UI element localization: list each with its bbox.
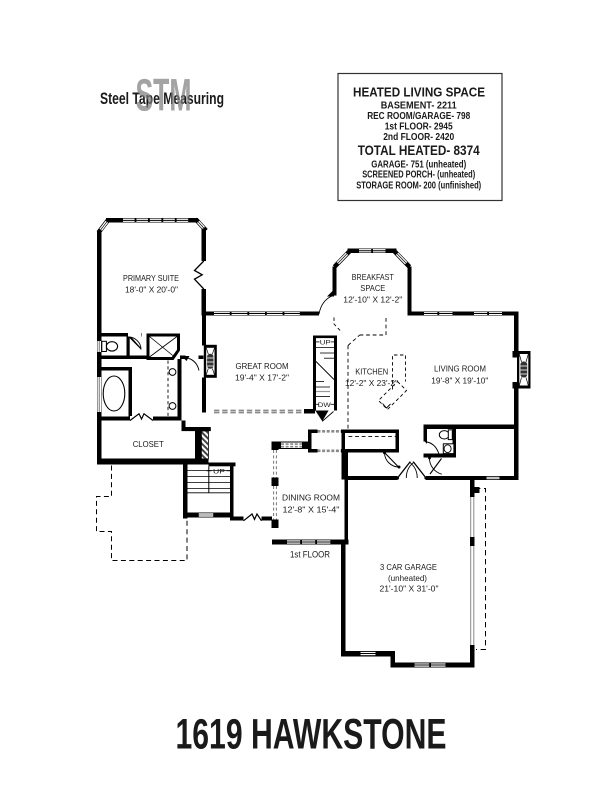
svg-text:(unheated): (unheated) bbox=[388, 573, 427, 583]
svg-text:1619 HAWKSTONE: 1619 HAWKSTONE bbox=[176, 709, 447, 758]
svg-text:12'-8" X 15'-4": 12'-8" X 15'-4" bbox=[283, 504, 340, 514]
svg-text:2nd FLOOR- 2420: 2nd FLOOR- 2420 bbox=[383, 132, 454, 143]
svg-text:HEATED LIVING SPACE: HEATED LIVING SPACE bbox=[353, 86, 485, 100]
svg-text:PRIMARY SUITE: PRIMARY SUITE bbox=[123, 273, 179, 283]
svg-text:LIVING ROOM: LIVING ROOM bbox=[434, 364, 486, 374]
svg-text:DW: DW bbox=[318, 402, 332, 409]
svg-text:UP: UP bbox=[213, 468, 226, 475]
svg-text:3 CAR GARAGE: 3 CAR GARAGE bbox=[380, 562, 437, 572]
svg-text:STM: STM bbox=[136, 70, 192, 120]
svg-text:18'-0" X 20'-0": 18'-0" X 20'-0" bbox=[125, 285, 178, 295]
svg-text:DINING ROOM: DINING ROOM bbox=[282, 493, 340, 503]
svg-text:12'-10" X 12'-2": 12'-10" X 12'-2" bbox=[343, 294, 402, 304]
svg-text:1st FLOOR: 1st FLOOR bbox=[290, 550, 330, 560]
svg-text:REC ROOM/GARAGE- 798: REC ROOM/GARAGE- 798 bbox=[367, 111, 470, 122]
svg-text:UP: UP bbox=[320, 339, 332, 346]
svg-text:SPACE: SPACE bbox=[360, 283, 385, 293]
svg-text:1st FLOOR- 2945: 1st FLOOR- 2945 bbox=[385, 122, 453, 133]
svg-text:STORAGE ROOM- 200 (unfinished): STORAGE ROOM- 200 (unfinished) bbox=[356, 181, 481, 192]
svg-text:CLOSET: CLOSET bbox=[133, 439, 164, 449]
svg-text:21'-10" X 31'-0": 21'-10" X 31'-0" bbox=[380, 583, 439, 593]
svg-text:BASEMENT- 2211: BASEMENT- 2211 bbox=[381, 101, 457, 112]
svg-text:SCREENED PORCH- (unheated): SCREENED PORCH- (unheated) bbox=[362, 170, 475, 181]
svg-text:TOTAL HEATED- 8374: TOTAL HEATED- 8374 bbox=[358, 143, 480, 158]
svg-text:19'-4" X 17'-2": 19'-4" X 17'-2" bbox=[235, 372, 289, 382]
svg-text:GREAT ROOM: GREAT ROOM bbox=[236, 361, 289, 371]
svg-text:12'-2" X 23'-2": 12'-2" X 23'-2" bbox=[345, 378, 398, 388]
svg-text:BREAKFAST: BREAKFAST bbox=[352, 272, 394, 282]
svg-text:19'-8" X 19'-10": 19'-8" X 19'-10" bbox=[431, 375, 488, 385]
svg-text:KITCHEN: KITCHEN bbox=[355, 367, 388, 377]
